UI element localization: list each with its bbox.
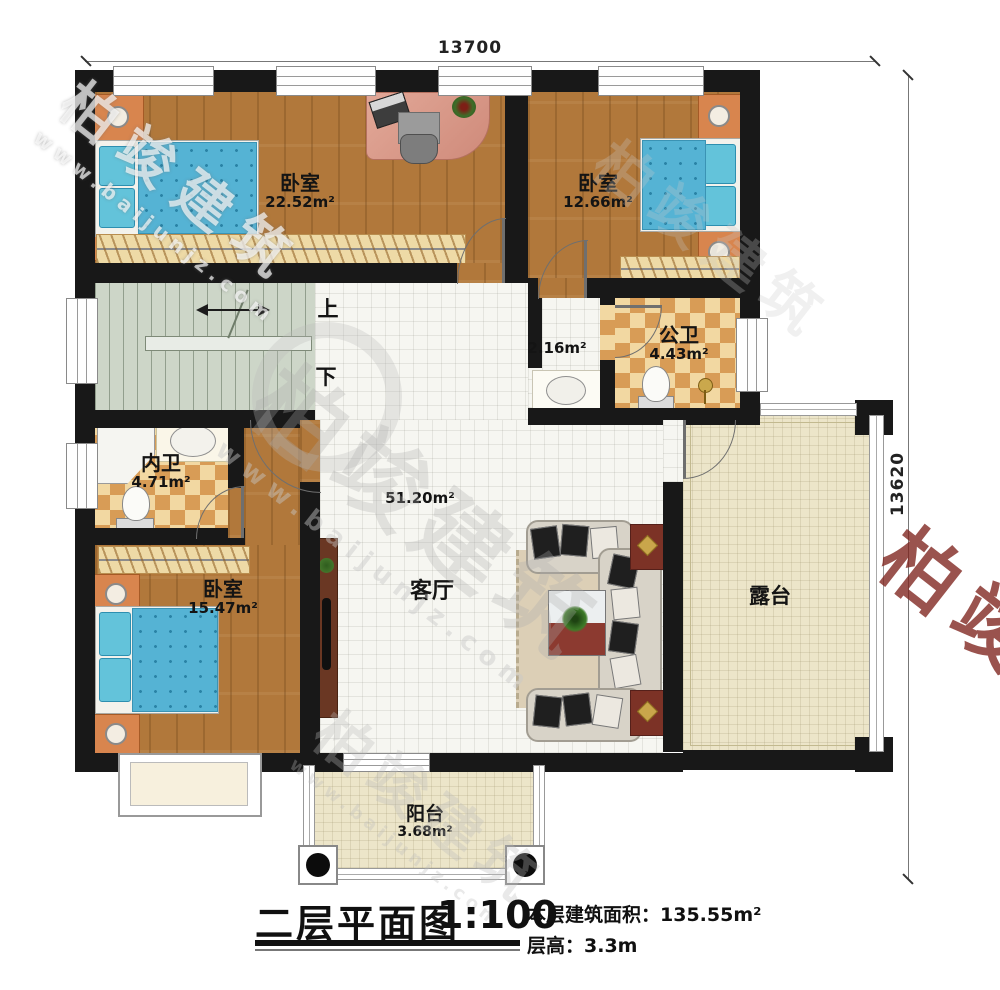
door-opening [600, 305, 615, 360]
window [66, 443, 98, 509]
window [736, 318, 768, 392]
desk-chair [400, 134, 438, 164]
door-leaf [615, 305, 661, 308]
wall [505, 70, 528, 283]
floor-area-row: 本层建筑面积：135.55m² [527, 900, 761, 927]
wardrobe [98, 546, 250, 574]
room-label-bedroom-bl: 卧室 15.47m² [162, 578, 284, 617]
stairs-up-text: 上 [312, 298, 344, 322]
bed-pillow [704, 144, 736, 184]
room-name: 阳台 [373, 804, 477, 825]
window [438, 66, 532, 96]
room-name: 内卫 [110, 452, 212, 474]
sofa-cushion [610, 654, 642, 689]
room-area: 2.16m² [516, 340, 598, 357]
toilet [122, 486, 150, 521]
room-label-public-bath: 公卫 4.43m² [618, 324, 740, 363]
bed-pillow [99, 612, 131, 656]
terrace-railing [869, 415, 884, 752]
wall [428, 753, 683, 772]
sofa-cushion [562, 692, 593, 726]
room-label-balcony: 阳台 3.68m² [373, 804, 477, 841]
watermark-logo-ring [252, 322, 402, 472]
floor-height-row: 层高：3.3m [527, 931, 637, 958]
stair-direction-arrow [196, 304, 208, 316]
bed-pillow [99, 188, 135, 228]
dimension-right-value: 13620 [888, 448, 908, 520]
floor-height-value: 3.3m [584, 935, 637, 957]
plant [562, 606, 588, 632]
room-area: 12.66m² [537, 194, 659, 211]
nightstand [94, 94, 144, 142]
title-underline [255, 949, 520, 951]
wall [315, 753, 345, 772]
nightstand [698, 94, 742, 140]
sofa-cushion [560, 524, 590, 557]
bay-window [130, 762, 248, 806]
sofa-cushion [532, 695, 562, 729]
room-area: 4.71m² [110, 474, 212, 491]
bed-pillow [99, 658, 131, 702]
room-name: 卧室 [162, 578, 284, 600]
stair-direction-arrow [258, 304, 270, 316]
bed-blanket [132, 608, 218, 712]
door-leaf [502, 218, 505, 283]
door-leaf [683, 420, 686, 478]
bed-pillow [704, 186, 736, 226]
title-underline [255, 940, 520, 946]
floor-height-label: 层高： [527, 935, 584, 957]
dimension-top-value: 13700 [420, 38, 520, 58]
sofa-cushion [592, 694, 624, 729]
room-name: 露台 [718, 585, 822, 609]
terrace-railing [760, 403, 857, 416]
balcony-column [505, 845, 545, 885]
sink [546, 376, 586, 405]
floor-area-value: 135.55m² [660, 904, 761, 926]
window [276, 66, 376, 96]
stairs-up-label: 上 [312, 298, 344, 322]
tv [322, 598, 331, 670]
floor-plan-canvas: 卧室 22.52m² 卧室 12.66m² 公卫 4.43m² 2.16m² 内… [0, 0, 1000, 990]
dimension-line-right [908, 75, 909, 880]
room-area: 4.43m² [618, 346, 740, 363]
room-area: 15.47m² [162, 600, 284, 617]
plant [319, 558, 334, 573]
room-label-vanity: 2.16m² [516, 340, 598, 357]
floor-area-label: 本层建筑面积： [527, 904, 660, 926]
room-area: 22.52m² [239, 194, 361, 211]
window [113, 66, 214, 96]
sofa-cushion [610, 587, 640, 621]
potted-plant [452, 96, 476, 118]
balcony-column [298, 845, 338, 885]
door-opening [663, 420, 683, 482]
door-leaf [241, 486, 244, 538]
sliding-door [343, 753, 430, 772]
room-label-private-bath: 内卫 4.71m² [110, 452, 212, 491]
room-label-terrace: 露台 [718, 585, 822, 609]
room-name: 卧室 [239, 172, 361, 194]
wardrobe [96, 234, 466, 264]
window [598, 66, 704, 96]
toilet [642, 366, 670, 402]
room-area: 3.68m² [373, 825, 477, 841]
room-name: 客厅 [380, 580, 484, 605]
door-leaf [584, 240, 587, 298]
room-name: 卧室 [537, 172, 659, 194]
sofa-cushion [608, 620, 639, 654]
wall [75, 263, 457, 283]
bed-pillow [99, 146, 135, 186]
room-name: 公卫 [618, 324, 740, 346]
room-label-living-area: 51.20m² [368, 490, 472, 507]
shower-head-icon [704, 390, 706, 404]
stair-direction-arrow [206, 309, 258, 311]
nightstand [94, 714, 140, 756]
dimension-line-top [85, 61, 875, 62]
room-label-bedroom-tl: 卧室 22.52m² [239, 172, 361, 211]
wall [683, 750, 858, 770]
wall [75, 753, 122, 772]
sofa-cushion [530, 525, 561, 559]
room-area: 51.20m² [368, 490, 472, 507]
window [66, 298, 98, 384]
wall [587, 278, 740, 298]
room-label-bedroom-tr: 卧室 12.66m² [537, 172, 659, 211]
room-label-living: 客厅 [380, 580, 484, 605]
